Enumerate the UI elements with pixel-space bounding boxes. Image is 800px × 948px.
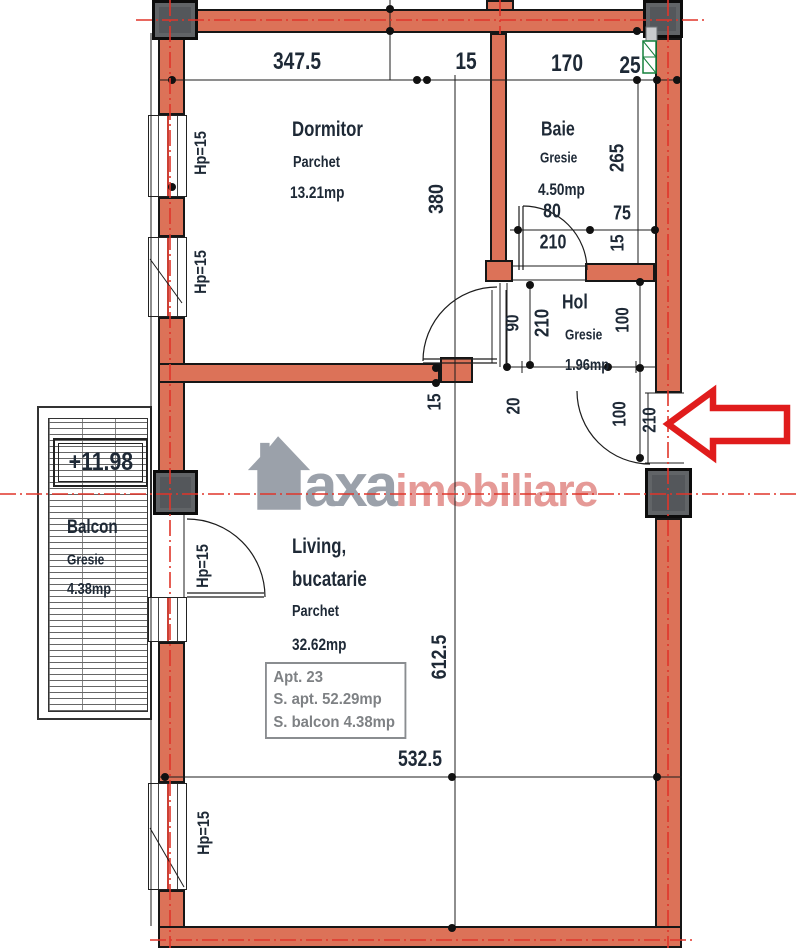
dim-label-380: 380	[425, 184, 449, 214]
room-floor-dormitor: Parchet	[293, 154, 340, 172]
dim-label-612-5: 612.5	[428, 635, 452, 680]
room-area-dormitor: 13.21mp	[290, 183, 344, 203]
window-dormitor-2	[148, 237, 187, 317]
apartment-area: S. apt. 52.29mp	[273, 689, 398, 711]
wall-right-lower	[655, 518, 682, 928]
dim-label-100-hol: 100	[613, 307, 634, 333]
wall-divider	[158, 363, 440, 383]
door-swings	[187, 206, 650, 597]
balcony-level-box: +11.98	[53, 438, 148, 487]
window-dormitor-1	[148, 115, 187, 197]
apartment-balcony-area: S. balcon 4.38mp	[273, 712, 398, 734]
watermark: axaimobiliare	[246, 436, 598, 510]
dim-label-265: 265	[607, 144, 630, 172]
dim-label-347-5: 347.5	[273, 48, 321, 76]
dim-label-210-baie: 210	[540, 232, 567, 255]
window-living-1	[148, 597, 187, 642]
apartment-number: Apt. 23	[273, 667, 398, 689]
dim-label-75: 75	[613, 203, 631, 226]
wall-baie-bottom	[585, 263, 655, 282]
room-floor-balcon: Gresie	[67, 552, 104, 569]
wall-left-4	[158, 642, 185, 783]
room-label-living-1: Living,	[292, 535, 346, 559]
dim-label-210-entry: 210	[640, 407, 661, 433]
room-label-balcon: Balcon	[67, 517, 118, 539]
room-area-hol: 1.96mp	[565, 357, 609, 375]
wall-right-upper	[655, 38, 682, 393]
dim-label-90: 90	[503, 314, 524, 331]
room-floor-baie: Gresie	[540, 150, 577, 167]
balcony-level-label: +11.98	[68, 448, 132, 477]
dim-label-15-top: 15	[455, 48, 476, 76]
dormitor-door-arc	[423, 287, 497, 361]
dim-label-80: 80	[543, 201, 561, 224]
wall-left-3	[158, 317, 185, 475]
house-logo-icon	[246, 436, 312, 510]
dim-label-hp15-4: Hp=15	[194, 811, 214, 855]
pillar-mid-left	[153, 470, 198, 515]
dim-label-532-5: 532.5	[398, 746, 442, 772]
room-area-living: 32.62mp	[292, 635, 346, 655]
dim-label-hp15-2: Hp=15	[191, 250, 211, 294]
watermark-brand: axa	[304, 462, 395, 510]
dim-label-15-divider: 15	[425, 393, 446, 410]
dim-label-15-baie: 15	[608, 234, 629, 251]
dim-label-100-entry: 100	[610, 401, 631, 427]
pillar-top-right	[643, 0, 683, 38]
dim-label-20: 20	[504, 397, 525, 414]
watermark-suffix: imobiliare	[395, 472, 598, 510]
apartment-info-box: Apt. 23 S. apt. 52.29mp S. balcon 4.38mp	[265, 662, 406, 739]
dim-label-25: 25	[619, 52, 640, 80]
dim-label-hp15-1: Hp=15	[191, 131, 211, 175]
wall-divider-step	[440, 357, 473, 383]
wall-top-stub	[486, 0, 514, 11]
room-label-living-2: bucatarie	[292, 568, 367, 592]
pillar-top-left	[152, 0, 198, 40]
wall-left-2	[158, 197, 185, 237]
wall-left-1	[158, 33, 185, 115]
room-area-baie: 4.50mp	[538, 180, 585, 200]
pillar-mid-right	[645, 468, 692, 518]
wall-bottom	[158, 926, 682, 948]
floor-plan: +11.98 axaimobiliare	[0, 0, 800, 948]
dim-label-210-hol: 210	[532, 309, 555, 337]
dim-label-hp15-3: Hp=15	[193, 544, 213, 588]
room-area-balcon: 4.38mp	[67, 581, 111, 599]
room-floor-hol: Gresie	[565, 327, 602, 344]
window-living-2	[148, 783, 187, 890]
room-label-baie: Baie	[541, 119, 575, 142]
wall-baie-door-jamb	[485, 260, 513, 282]
room-label-dormitor: Dormitor	[292, 118, 363, 142]
room-label-hol: Hol	[562, 292, 588, 315]
wall-dormitor-baie	[490, 33, 507, 263]
wall-top	[155, 9, 683, 33]
entrance-arrow-icon	[668, 391, 787, 457]
dim-label-170: 170	[551, 50, 583, 78]
room-floor-living: Parchet	[292, 603, 339, 621]
